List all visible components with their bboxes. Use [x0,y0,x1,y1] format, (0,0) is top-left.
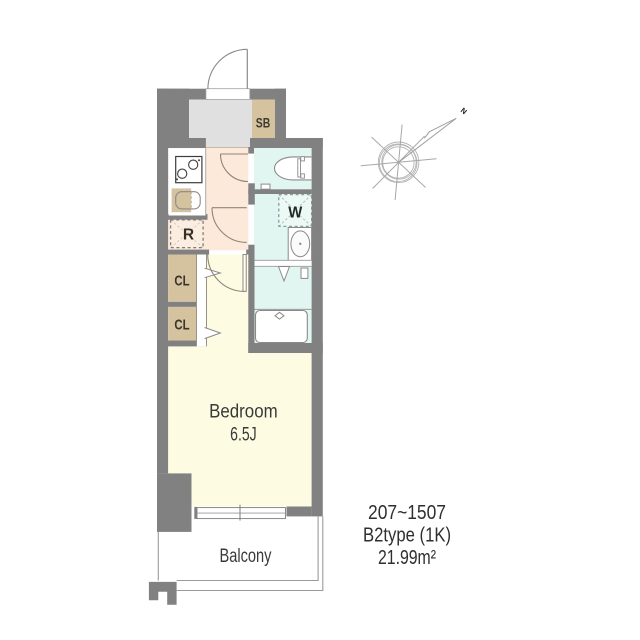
svg-text:207~1507: 207~1507 [368,502,446,524]
svg-text:CL: CL [174,273,189,290]
svg-text:Balcony: Balcony [220,546,272,567]
svg-text:21.99m²: 21.99m² [378,547,436,569]
svg-text:SB: SB [256,115,271,131]
svg-text:6.5J: 6.5J [230,423,257,445]
svg-text:Bedroom: Bedroom [209,401,278,423]
svg-text:CL: CL [174,317,189,334]
svg-text:B2type (1K): B2type (1K) [363,525,451,547]
svg-text:W: W [288,205,303,222]
svg-text:R: R [183,227,194,244]
